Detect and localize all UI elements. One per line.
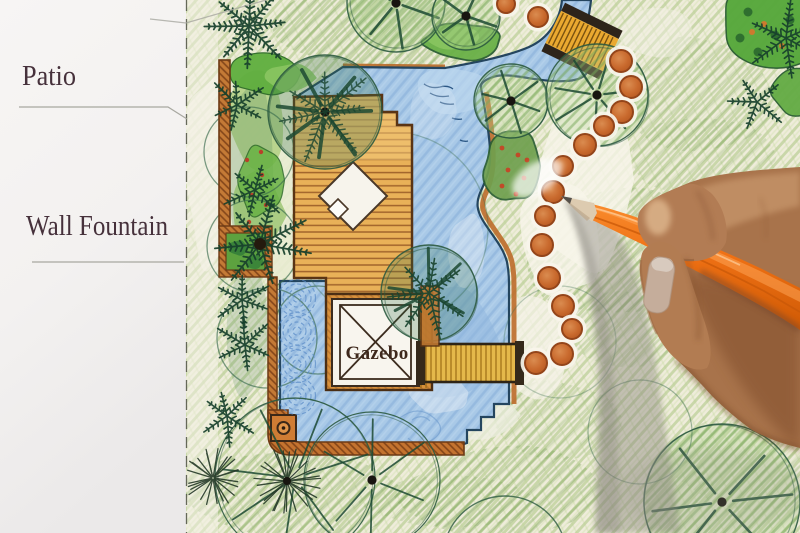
svg-text:Gazebo: Gazebo bbox=[345, 343, 408, 364]
svg-text:Patio: Patio bbox=[22, 60, 76, 92]
svg-text:Wall Fountain: Wall Fountain bbox=[26, 210, 168, 242]
